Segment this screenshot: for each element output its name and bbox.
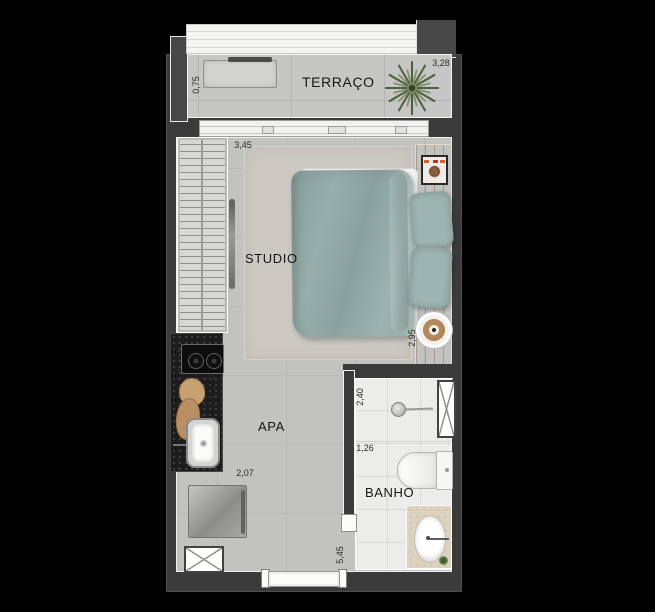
bathroom-wall-top xyxy=(343,364,453,379)
shower-partition xyxy=(356,441,452,442)
terrace-sliding-door xyxy=(199,120,429,137)
shower-head xyxy=(391,402,406,417)
toilet xyxy=(397,452,439,489)
door-mullion xyxy=(395,126,407,134)
refrigerator xyxy=(188,485,247,538)
kitchen-sink xyxy=(186,418,220,468)
dim-banho-depth: 2,40 xyxy=(355,382,365,412)
sink-drain xyxy=(200,440,207,447)
dim-terrace-width: 3,28 xyxy=(426,58,456,68)
burner xyxy=(206,353,222,369)
vanity-faucet xyxy=(429,538,449,540)
terrace-bench xyxy=(203,60,277,88)
art-accent xyxy=(424,160,445,163)
wall-block-top-right xyxy=(416,20,456,58)
room-label-banho: BANHO xyxy=(365,485,414,500)
pillow xyxy=(409,190,455,249)
bed-duvet xyxy=(291,169,415,337)
duvet-fold xyxy=(389,173,409,331)
dim-studio-width: 3,45 xyxy=(228,140,258,150)
duct-shaft xyxy=(184,546,224,573)
floor-plan: TERRAÇO STUDIO APA BANHO 0,75 3,28 3,45 … xyxy=(0,0,655,612)
room-label-studio: STUDIO xyxy=(245,251,298,266)
bench-tray xyxy=(228,57,272,62)
vanity-plant xyxy=(439,556,448,565)
nightstand-tray xyxy=(416,312,452,348)
flush-button xyxy=(445,468,449,472)
dim-banho-width: 1,26 xyxy=(352,443,378,453)
refrigerator-handle xyxy=(241,490,245,534)
pillow xyxy=(408,246,453,310)
duct-shaft xyxy=(437,380,456,438)
nightstand-art xyxy=(421,155,448,185)
toilet-tank xyxy=(436,451,453,490)
bathroom-vanity xyxy=(406,505,452,569)
dim-terrace-depth: 0,75 xyxy=(191,70,201,100)
door-mullion xyxy=(262,126,274,134)
dim-apto-depth: 5,45 xyxy=(335,540,345,570)
dim-studio-depth: 2,95 xyxy=(407,323,417,353)
cooktop xyxy=(181,344,224,374)
plant-icon xyxy=(384,60,440,116)
bathroom-door-jamb xyxy=(341,514,357,532)
wardrobe-sliding-panel xyxy=(229,199,235,289)
room-label-terraco: TERRAÇO xyxy=(302,74,375,90)
dim-kitchen-run: 2,07 xyxy=(230,468,260,478)
door-mullion xyxy=(328,126,346,134)
art-disc xyxy=(428,165,441,178)
entrance-door xyxy=(268,571,340,587)
wardrobe xyxy=(177,137,228,333)
room-label-apa: APA xyxy=(258,419,285,434)
burner xyxy=(188,353,204,369)
terrace-railing xyxy=(186,24,438,54)
